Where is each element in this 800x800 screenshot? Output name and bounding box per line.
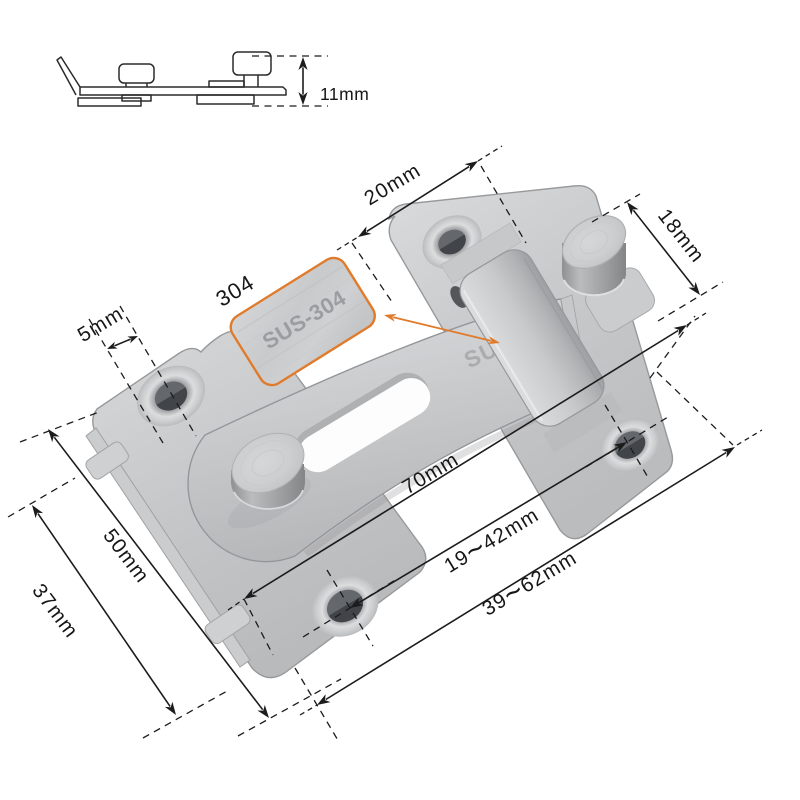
- svg-text:11mm: 11mm: [320, 84, 369, 104]
